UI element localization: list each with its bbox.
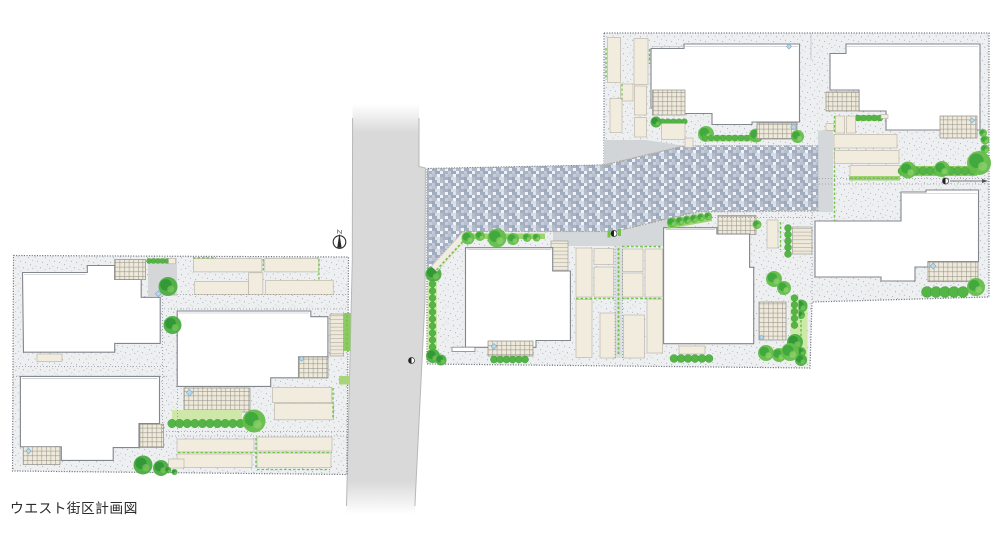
svg-text:ウエスト街区計画図: ウエスト街区計画図	[10, 501, 138, 516]
